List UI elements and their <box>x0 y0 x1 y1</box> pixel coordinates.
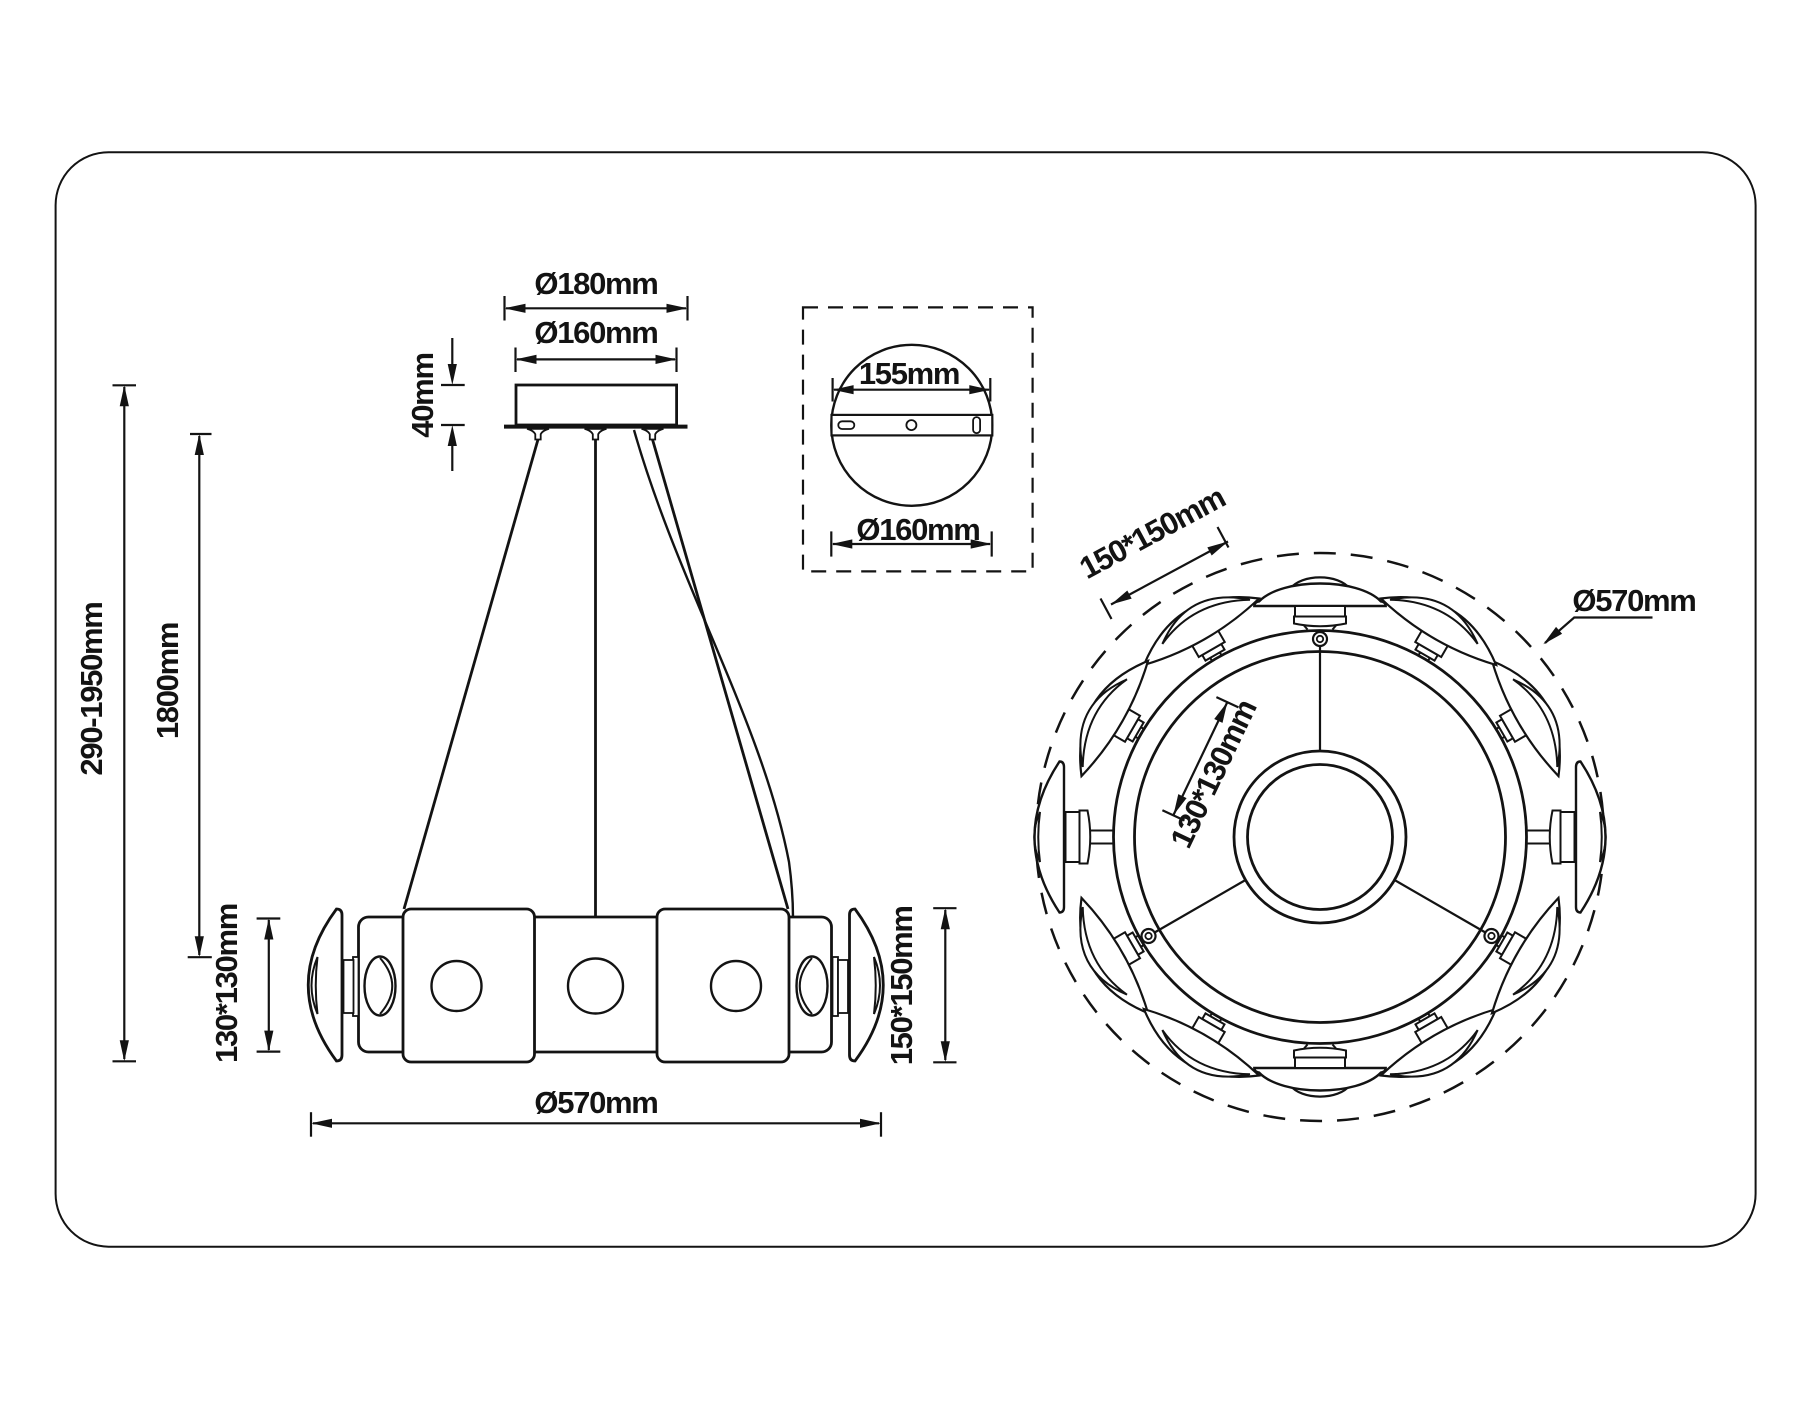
svg-text:Ø160mm: Ø160mm <box>856 512 979 547</box>
svg-text:Ø570mm: Ø570mm <box>1572 583 1695 618</box>
svg-text:150*150mm: 150*150mm <box>884 906 919 1065</box>
svg-text:130*130mm: 130*130mm <box>209 904 244 1063</box>
svg-text:Ø570mm: Ø570mm <box>534 1085 657 1120</box>
svg-text:290-1950mm: 290-1950mm <box>74 602 109 775</box>
svg-text:1800mm: 1800mm <box>150 623 185 739</box>
svg-text:155mm: 155mm <box>859 356 959 391</box>
svg-text:40mm: 40mm <box>405 353 440 437</box>
svg-text:Ø180mm: Ø180mm <box>534 266 657 301</box>
svg-text:Ø160mm: Ø160mm <box>534 315 657 350</box>
